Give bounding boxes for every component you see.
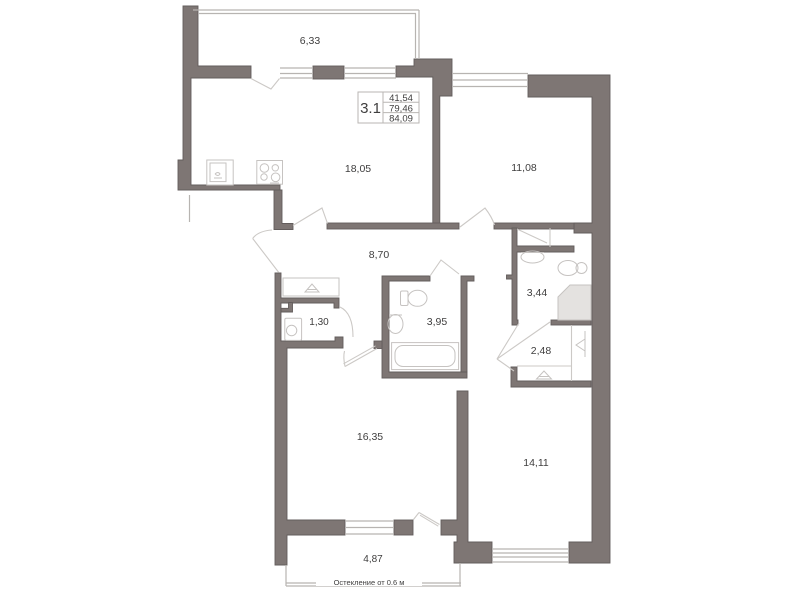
svg-text:11,08: 11,08: [511, 162, 537, 174]
svg-text:8,70: 8,70: [369, 249, 390, 261]
svg-text:14,11: 14,11: [523, 457, 549, 469]
svg-text:2,48: 2,48: [531, 345, 552, 357]
svg-text:1,30: 1,30: [309, 317, 329, 328]
svg-text:6,33: 6,33: [300, 35, 321, 47]
svg-text:16,35: 16,35: [357, 431, 383, 443]
svg-text:3,95: 3,95: [427, 316, 448, 328]
svg-text:3,44: 3,44: [527, 287, 548, 299]
svg-text:3.1: 3.1: [360, 100, 381, 117]
svg-text:84,09: 84,09: [389, 114, 413, 125]
svg-text:18,05: 18,05: [345, 163, 371, 175]
svg-text:Остекление от 0.6 м: Остекление от 0.6 м: [334, 578, 405, 587]
svg-text:4,87: 4,87: [363, 554, 383, 565]
